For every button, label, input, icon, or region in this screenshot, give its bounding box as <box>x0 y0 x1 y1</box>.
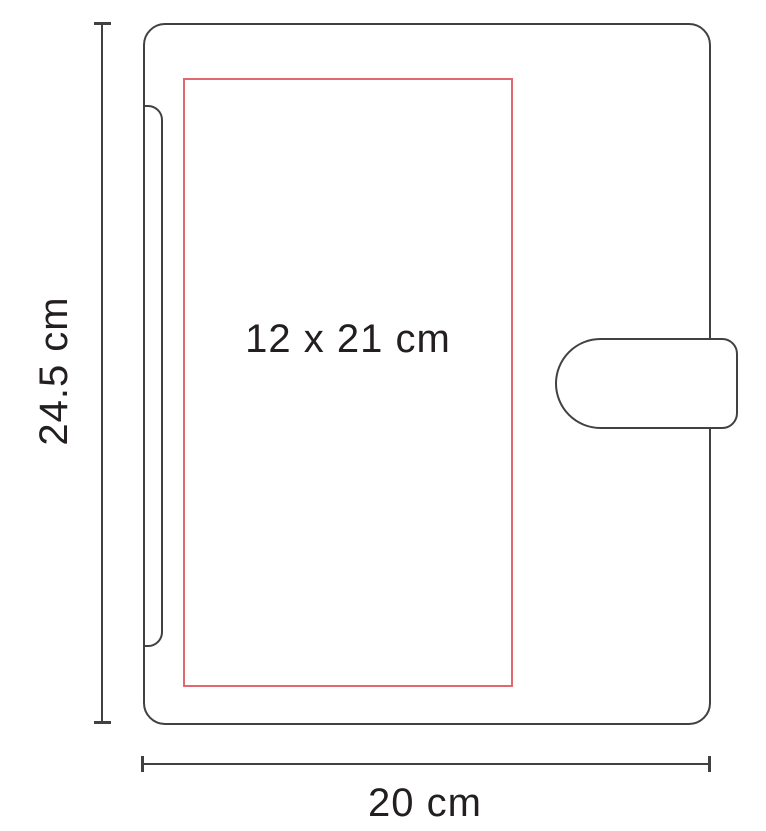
clasp-tab <box>555 338 738 429</box>
height-dimension-line <box>101 23 103 724</box>
height-dimension-bottom-tick <box>94 721 111 724</box>
height-dimension-label: 24.5 cm <box>32 291 76 451</box>
print-area-box: 12 x 21 cm <box>183 78 513 687</box>
diagram-canvas: 24.5 cm 12 x 21 cm 20 cm <box>0 0 766 831</box>
width-dimension-line <box>142 763 710 765</box>
print-area-label: 12 x 21 cm <box>185 317 511 361</box>
width-dimension-right-tick <box>708 756 711 772</box>
height-dimension-top-tick <box>94 22 111 25</box>
width-dimension-left-tick <box>141 756 144 772</box>
width-dimension-label: 20 cm <box>325 781 525 825</box>
spine-clip <box>143 105 163 647</box>
